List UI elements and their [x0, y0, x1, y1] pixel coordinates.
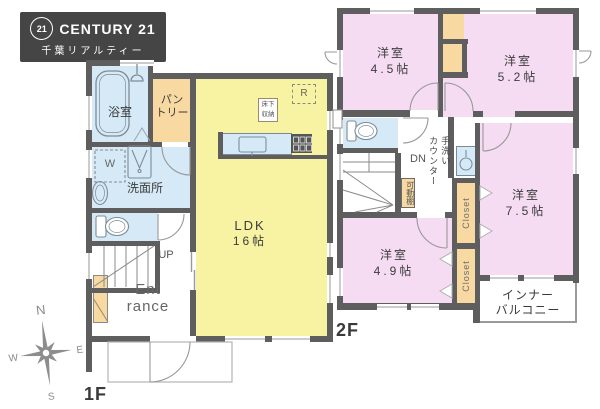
closet-2f-bottom: Closet: [457, 249, 475, 303]
window: [337, 154, 343, 180]
handwash-sink-area: [456, 146, 476, 176]
room-2f-tl-size: 4.5帖: [342, 62, 440, 76]
room-washroom: [92, 147, 190, 208]
movable-shelf: 可動棚: [401, 178, 415, 208]
closet-2f-top: Closet: [457, 183, 475, 243]
wall: [337, 148, 398, 153]
room-2f-tr-label: 洋室: [468, 54, 568, 68]
washroom-label: 洗面所: [105, 181, 185, 195]
wall: [441, 72, 468, 78]
wall: [190, 290, 196, 336]
door-gap: [327, 111, 333, 130]
window: [573, 148, 579, 174]
compass-west: W: [8, 352, 19, 364]
window: [490, 275, 518, 281]
kitchen-counter: [218, 133, 292, 155]
wall: [86, 336, 150, 342]
closet-label: Closet: [461, 260, 471, 292]
century21-seal-icon: 21: [30, 17, 53, 40]
stairs-up-label: UP: [152, 249, 180, 262]
wall: [473, 111, 483, 117]
window: [377, 304, 407, 310]
room-2f-bl-size: 4.9帖: [344, 264, 444, 278]
compass-south: S: [47, 391, 55, 403]
window: [337, 120, 343, 144]
room-2f-right-size: 7.5帖: [477, 204, 575, 218]
wall: [337, 212, 417, 218]
window: [370, 8, 414, 14]
wall: [337, 110, 410, 117]
window: [86, 150, 92, 178]
window: [411, 304, 439, 310]
window: [86, 253, 92, 279]
window: [480, 8, 536, 14]
bathroom-label: 浴室: [92, 105, 148, 119]
room-2f-tr-size: 5.2帖: [468, 70, 568, 84]
pantry-label: パントリー: [150, 94, 194, 120]
window: [327, 243, 333, 257]
compass-east: E: [76, 344, 84, 356]
logo-row: 21 CENTURY 21: [30, 17, 155, 40]
handwash-counter-label: 手洗いカウンター: [427, 136, 451, 224]
wall: [438, 111, 443, 117]
wall: [86, 208, 190, 213]
window: [573, 50, 579, 77]
entrance-label: Entrance: [108, 281, 188, 316]
stairs-2f: [343, 153, 395, 212]
room-2f-tl-label: 洋室: [342, 46, 440, 60]
ldk-size-label: 16帖: [205, 234, 295, 248]
window: [524, 275, 554, 281]
century21-logo: 21 CENTURY 21 千葉リアルティー: [20, 12, 166, 62]
window: [272, 336, 310, 342]
wall: [475, 123, 480, 178]
closet-mid-bottom: [443, 44, 462, 72]
washer-label: W: [95, 158, 125, 171]
window: [120, 60, 154, 66]
wall: [86, 241, 160, 246]
wall: [515, 111, 573, 117]
compass-rose: N E S W: [8, 296, 88, 408]
shoe-cabinet: [93, 275, 108, 323]
fridge-label: R: [292, 88, 316, 100]
window: [225, 336, 265, 342]
wall: [218, 155, 327, 159]
inner-balcony-label: インナーバルコニー: [479, 288, 577, 318]
floorplan-canvas: 21 CENTURY 21 千葉リアルティー: [0, 0, 600, 409]
compass-north: N: [35, 302, 46, 318]
movable-shelf-label: 可動棚: [404, 181, 415, 205]
wall: [148, 73, 333, 79]
wall: [86, 142, 162, 147]
compass-star: N E S W: [8, 298, 88, 407]
room-bathroom: [92, 66, 148, 142]
logo-subtitle: 千葉リアルティー: [41, 42, 144, 57]
room-2f-right-label: 洋室: [477, 188, 575, 202]
seal-number: 21: [37, 24, 47, 34]
logo-brand: CENTURY 21: [59, 21, 155, 37]
room-toilet-2f: [343, 118, 398, 148]
closet-mid-top: [443, 13, 464, 39]
room-toilet-1f: [92, 213, 158, 241]
window: [327, 275, 333, 303]
closet-label: Closet: [461, 197, 471, 229]
ldk-label: LDK: [205, 218, 295, 234]
window: [337, 268, 343, 296]
floor-storage-label: 床下収納: [258, 100, 278, 120]
floor1-tag: 1F: [84, 384, 107, 405]
floor2-tag: 2F: [336, 320, 359, 341]
room-2f-bl-label: 洋室: [344, 248, 444, 262]
